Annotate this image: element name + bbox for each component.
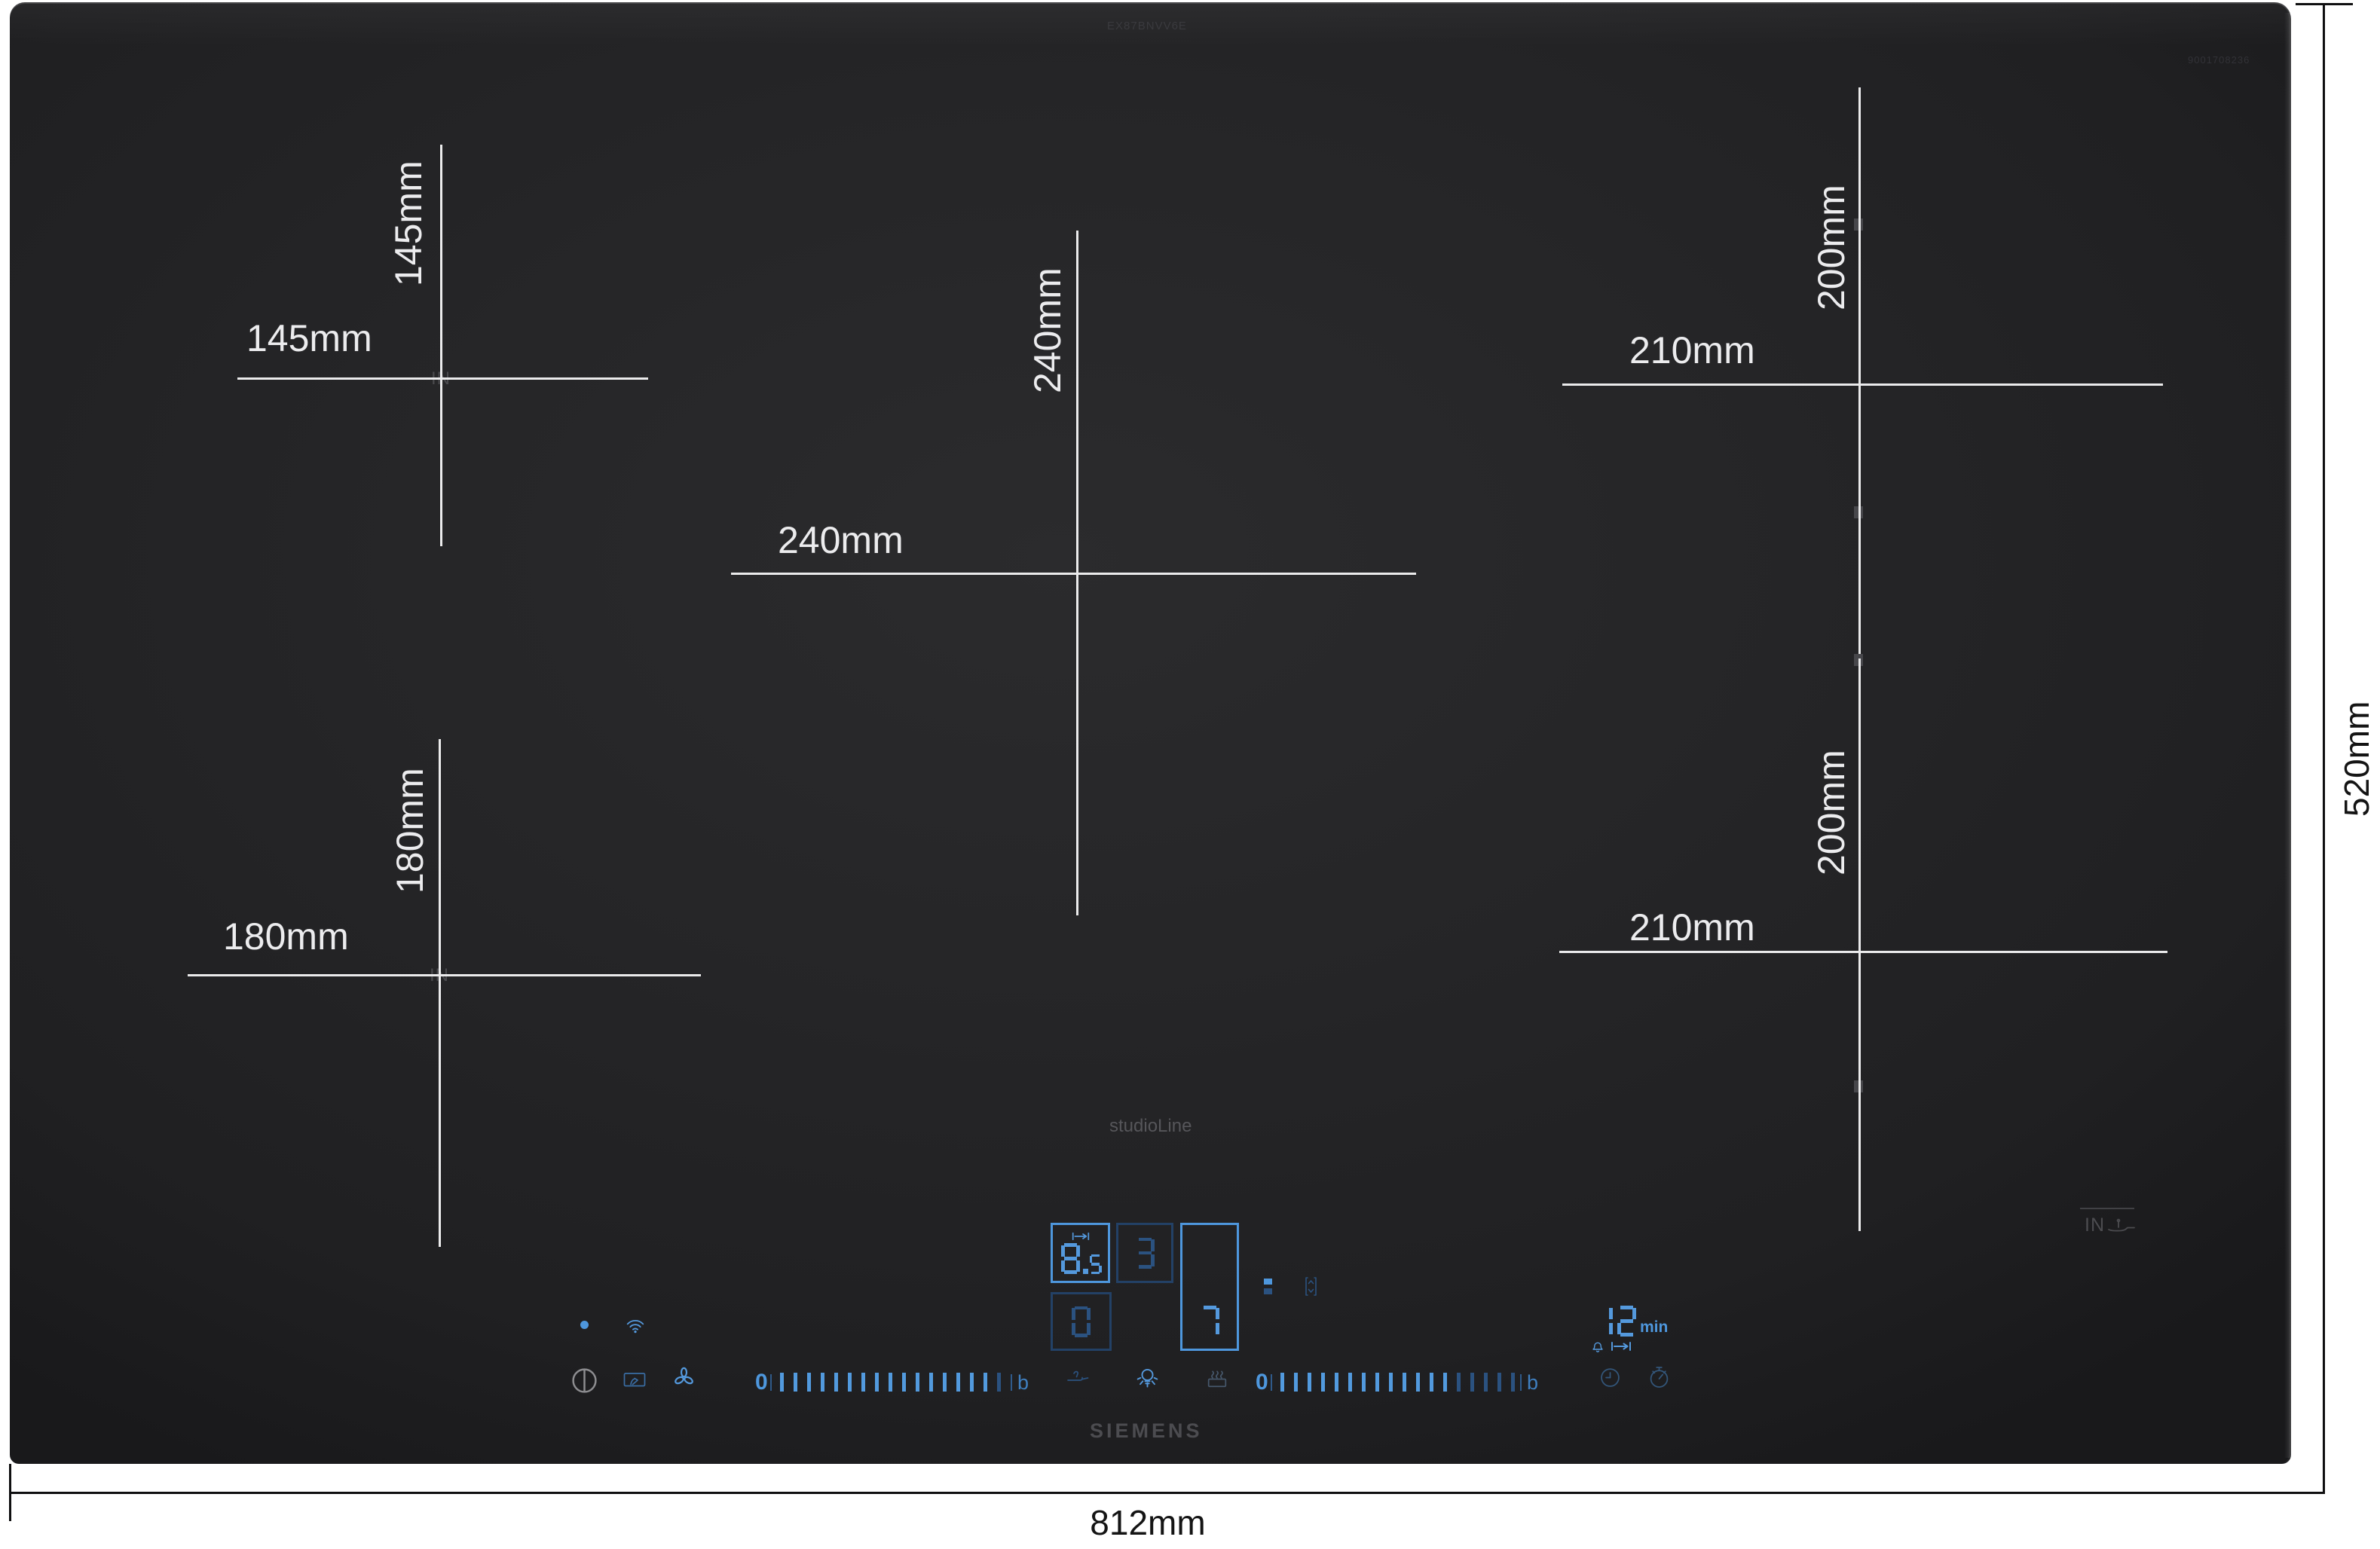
front-zone-level bbox=[1069, 1306, 1093, 1337]
power-status-dot bbox=[580, 1321, 589, 1329]
dimension-line-horizontal bbox=[1562, 383, 2163, 386]
zone-height-label: 180mm bbox=[390, 750, 430, 894]
slider-right-min-label: 0 bbox=[1256, 1371, 1268, 1394]
dimension-line-horizontal bbox=[237, 377, 648, 380]
overall-height-line bbox=[2323, 3, 2325, 1494]
right-zone-display[interactable] bbox=[1180, 1223, 1239, 1351]
power-slider-right[interactable] bbox=[1280, 1373, 1515, 1392]
zone-height-label: 145mm bbox=[389, 142, 428, 286]
dimension-line-horizontal bbox=[731, 573, 1416, 575]
zone-height-label: 200mm bbox=[1812, 731, 1851, 875]
rear-zone-display[interactable] bbox=[1116, 1223, 1173, 1283]
dimension-line-horizontal bbox=[1559, 951, 2167, 953]
wifi-icon bbox=[626, 1318, 645, 1334]
induction-mark-line bbox=[2080, 1208, 2134, 1209]
cooktop-dimension-diagram: EX87BNVV6E 9001708236 studioLine SIEMENS… bbox=[0, 0, 2380, 1549]
pan-sensor-icon bbox=[2107, 1218, 2136, 1234]
overall-width-line bbox=[9, 1492, 2325, 1494]
pause-icon[interactable] bbox=[1264, 1279, 1272, 1298]
light-icon[interactable] bbox=[1136, 1366, 1158, 1392]
slider-left-start-tick bbox=[770, 1374, 772, 1391]
zone-height-label: 200mm bbox=[1812, 166, 1851, 310]
zone-width-label: 210mm bbox=[1629, 909, 1755, 946]
flex-zone-display[interactable] bbox=[1051, 1223, 1110, 1283]
dimension-line-vertical bbox=[440, 145, 442, 546]
pot-detection-icon[interactable] bbox=[1207, 1368, 1228, 1389]
induction-mark: IN bbox=[2085, 1214, 2105, 1236]
zone-width-label: 145mm bbox=[246, 319, 372, 357]
power-slider-left[interactable] bbox=[780, 1373, 1001, 1392]
move-zone-icon[interactable] bbox=[1305, 1276, 1317, 1297]
alarm-bell-icon bbox=[1592, 1340, 1604, 1352]
rear-zone-level bbox=[1133, 1238, 1157, 1269]
overall-width-label: 812mm bbox=[1035, 1505, 1261, 1540]
overall-height-label: 520mm bbox=[2338, 658, 2378, 817]
front-zone-display[interactable] bbox=[1051, 1292, 1112, 1351]
stopwatch-icon[interactable] bbox=[1649, 1364, 1669, 1389]
dimension-line-vertical bbox=[1858, 658, 1861, 1231]
slider-left-boost-label[interactable]: b bbox=[1017, 1373, 1029, 1393]
wipe-protection-icon[interactable] bbox=[623, 1370, 646, 1390]
power-icon[interactable] bbox=[571, 1366, 598, 1394]
dimension-line-horizontal bbox=[188, 974, 701, 976]
slider-left-end-tick bbox=[1011, 1374, 1012, 1391]
zone-width-label: 210mm bbox=[1629, 331, 1755, 369]
dimension-line-vertical bbox=[439, 739, 441, 1247]
zone-width-label: 240mm bbox=[778, 521, 904, 559]
fry-sensor-icon[interactable] bbox=[1066, 1366, 1090, 1387]
slider-left-min-label: 0 bbox=[755, 1371, 768, 1394]
zone-width-label: 180mm bbox=[223, 918, 349, 955]
part-number: 9001708236 bbox=[2188, 54, 2250, 66]
brand-logo: SIEMENS bbox=[1090, 1419, 1203, 1443]
series-logo: studioLine bbox=[1109, 1116, 1192, 1137]
flex-width-icon bbox=[1072, 1232, 1090, 1241]
flex-zone-level bbox=[1059, 1243, 1103, 1274]
timer-display[interactable] bbox=[1592, 1306, 1638, 1337]
clock-icon[interactable] bbox=[1600, 1367, 1620, 1388]
glass-right-bevel bbox=[2284, 13, 2291, 1458]
dimension-line-vertical bbox=[1858, 87, 1861, 654]
zone-height-label: 240mm bbox=[1028, 249, 1067, 393]
slider-right-boost-label[interactable]: b bbox=[1527, 1373, 1538, 1393]
flex-width-icon bbox=[1611, 1341, 1632, 1352]
model-number: EX87BNVV6E bbox=[1069, 20, 1225, 32]
timer-unit-label: min bbox=[1640, 1318, 1668, 1337]
hood-fan-icon[interactable] bbox=[671, 1366, 696, 1389]
right-zone-level bbox=[1198, 1306, 1222, 1337]
slider-right-start-tick bbox=[1271, 1374, 1272, 1391]
slider-right-end-tick bbox=[1520, 1374, 1522, 1391]
